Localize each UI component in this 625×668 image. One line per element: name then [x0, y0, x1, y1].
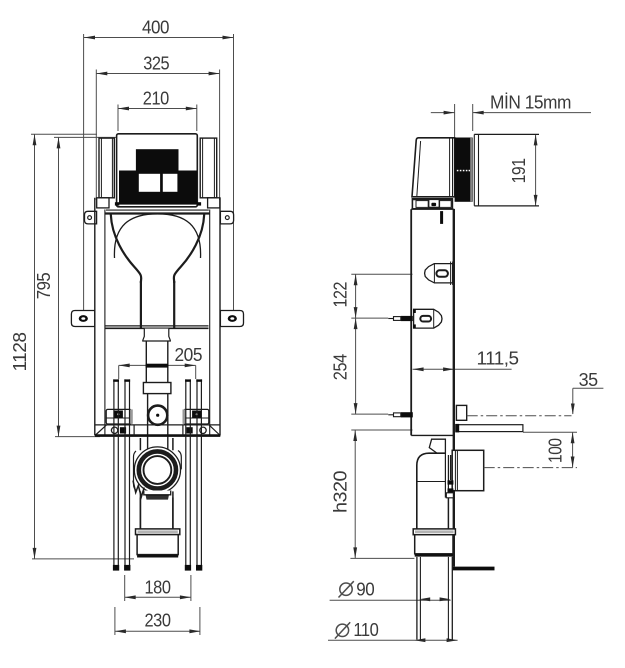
svg-text:111,5: 111,5 [477, 348, 519, 369]
svg-text:230: 230 [145, 610, 171, 631]
svg-text:400: 400 [142, 17, 169, 38]
svg-text:1128: 1128 [9, 332, 30, 371]
svg-text:795: 795 [33, 273, 54, 300]
svg-text:254: 254 [329, 354, 350, 380]
svg-text:35: 35 [579, 369, 598, 390]
svg-text:210: 210 [143, 88, 169, 109]
svg-text:180: 180 [145, 577, 171, 598]
svg-text:122: 122 [329, 282, 350, 308]
svg-text:325: 325 [143, 53, 169, 74]
svg-text:100: 100 [544, 438, 565, 463]
svg-text:90: 90 [356, 578, 374, 599]
svg-text:h320: h320 [329, 471, 350, 513]
svg-text:205: 205 [175, 344, 203, 365]
svg-text:MİN 15mm: MİN 15mm [490, 92, 571, 113]
svg-text:191: 191 [508, 158, 529, 183]
svg-text:110: 110 [353, 619, 378, 640]
